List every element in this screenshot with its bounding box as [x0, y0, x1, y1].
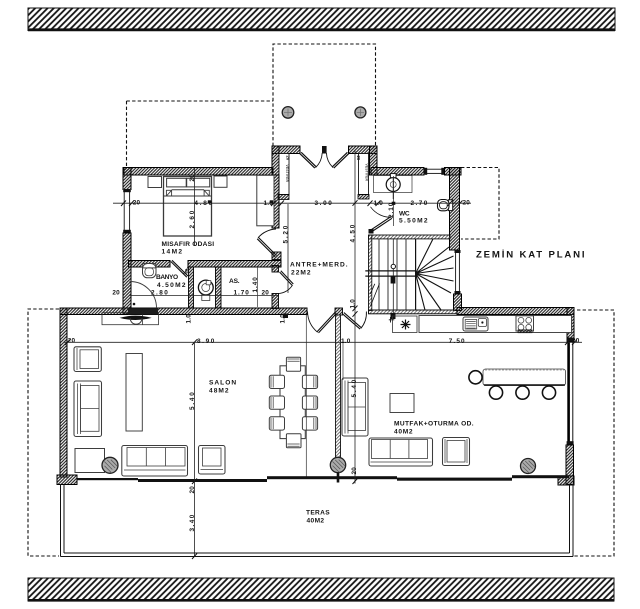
svg-text:8.90: 8.90 — [197, 338, 215, 345]
svg-text:7.50: 7.50 — [449, 338, 465, 345]
svg-text:4.50M2: 4.50M2 — [157, 282, 186, 289]
svg-text:ANTRE+MERD.: ANTRE+MERD. — [290, 262, 348, 269]
svg-text:TERAS: TERAS — [306, 510, 330, 517]
svg-text:MUTFAK+OTURMA OD.: MUTFAK+OTURMA OD. — [394, 421, 474, 428]
svg-text:2.70: 2.70 — [411, 200, 428, 207]
svg-text:22M2: 22M2 — [291, 270, 311, 277]
svg-text:20: 20 — [351, 467, 358, 475]
svg-text:MISAFIR ODASI: MISAFIR ODASI — [162, 241, 215, 248]
svg-text:20: 20 — [463, 199, 471, 206]
svg-text:40M2: 40M2 — [307, 518, 325, 525]
svg-text:14M2: 14M2 — [162, 249, 183, 256]
svg-text:20: 20 — [189, 486, 196, 494]
svg-text:2.60: 2.60 — [189, 210, 196, 228]
svg-text:20: 20 — [112, 290, 120, 297]
svg-text:20: 20 — [572, 338, 580, 345]
svg-text:ZEMİN KAT PLANI: ZEMİN KAT PLANI — [476, 250, 586, 261]
svg-text:5.40: 5.40 — [189, 392, 196, 410]
svg-text:1.40: 1.40 — [252, 277, 259, 293]
svg-text:2.10: 2.10 — [388, 202, 395, 218]
svg-text:3.40: 3.40 — [189, 514, 196, 531]
svg-text:1.0: 1.0 — [374, 200, 384, 207]
svg-text:1.0: 1.0 — [341, 338, 351, 345]
svg-text:VESTIYER: VESTIYER — [285, 165, 289, 183]
svg-text:60: 60 — [184, 268, 189, 273]
svg-text:BANYO: BANYO — [156, 274, 179, 281]
svg-text:5.40: 5.40 — [351, 379, 358, 397]
svg-text:2.80: 2.80 — [151, 290, 168, 297]
svg-text:5.20: 5.20 — [283, 225, 290, 243]
svg-text:WC: WC — [399, 211, 410, 218]
svg-text:5.50M2: 5.50M2 — [399, 218, 428, 225]
svg-text:48M2: 48M2 — [209, 388, 229, 395]
svg-text:20: 20 — [356, 156, 361, 161]
svg-text:20: 20 — [133, 199, 141, 206]
svg-text:20: 20 — [189, 174, 196, 182]
svg-text:AS.: AS. — [229, 278, 240, 285]
svg-text:1.0: 1.0 — [350, 299, 357, 309]
svg-text:20: 20 — [68, 338, 76, 345]
svg-text:VESTIYER: VESTIYER — [364, 164, 368, 182]
svg-text:SALON: SALON — [209, 380, 237, 387]
svg-text:1.0: 1.0 — [186, 314, 193, 324]
svg-text:20: 20 — [286, 156, 291, 161]
svg-text:1.70: 1.70 — [234, 290, 250, 297]
svg-text:20: 20 — [262, 290, 270, 297]
svg-text:4.50: 4.50 — [350, 224, 357, 242]
svg-text:40M2: 40M2 — [394, 429, 413, 436]
svg-text:3.00: 3.00 — [315, 200, 333, 207]
